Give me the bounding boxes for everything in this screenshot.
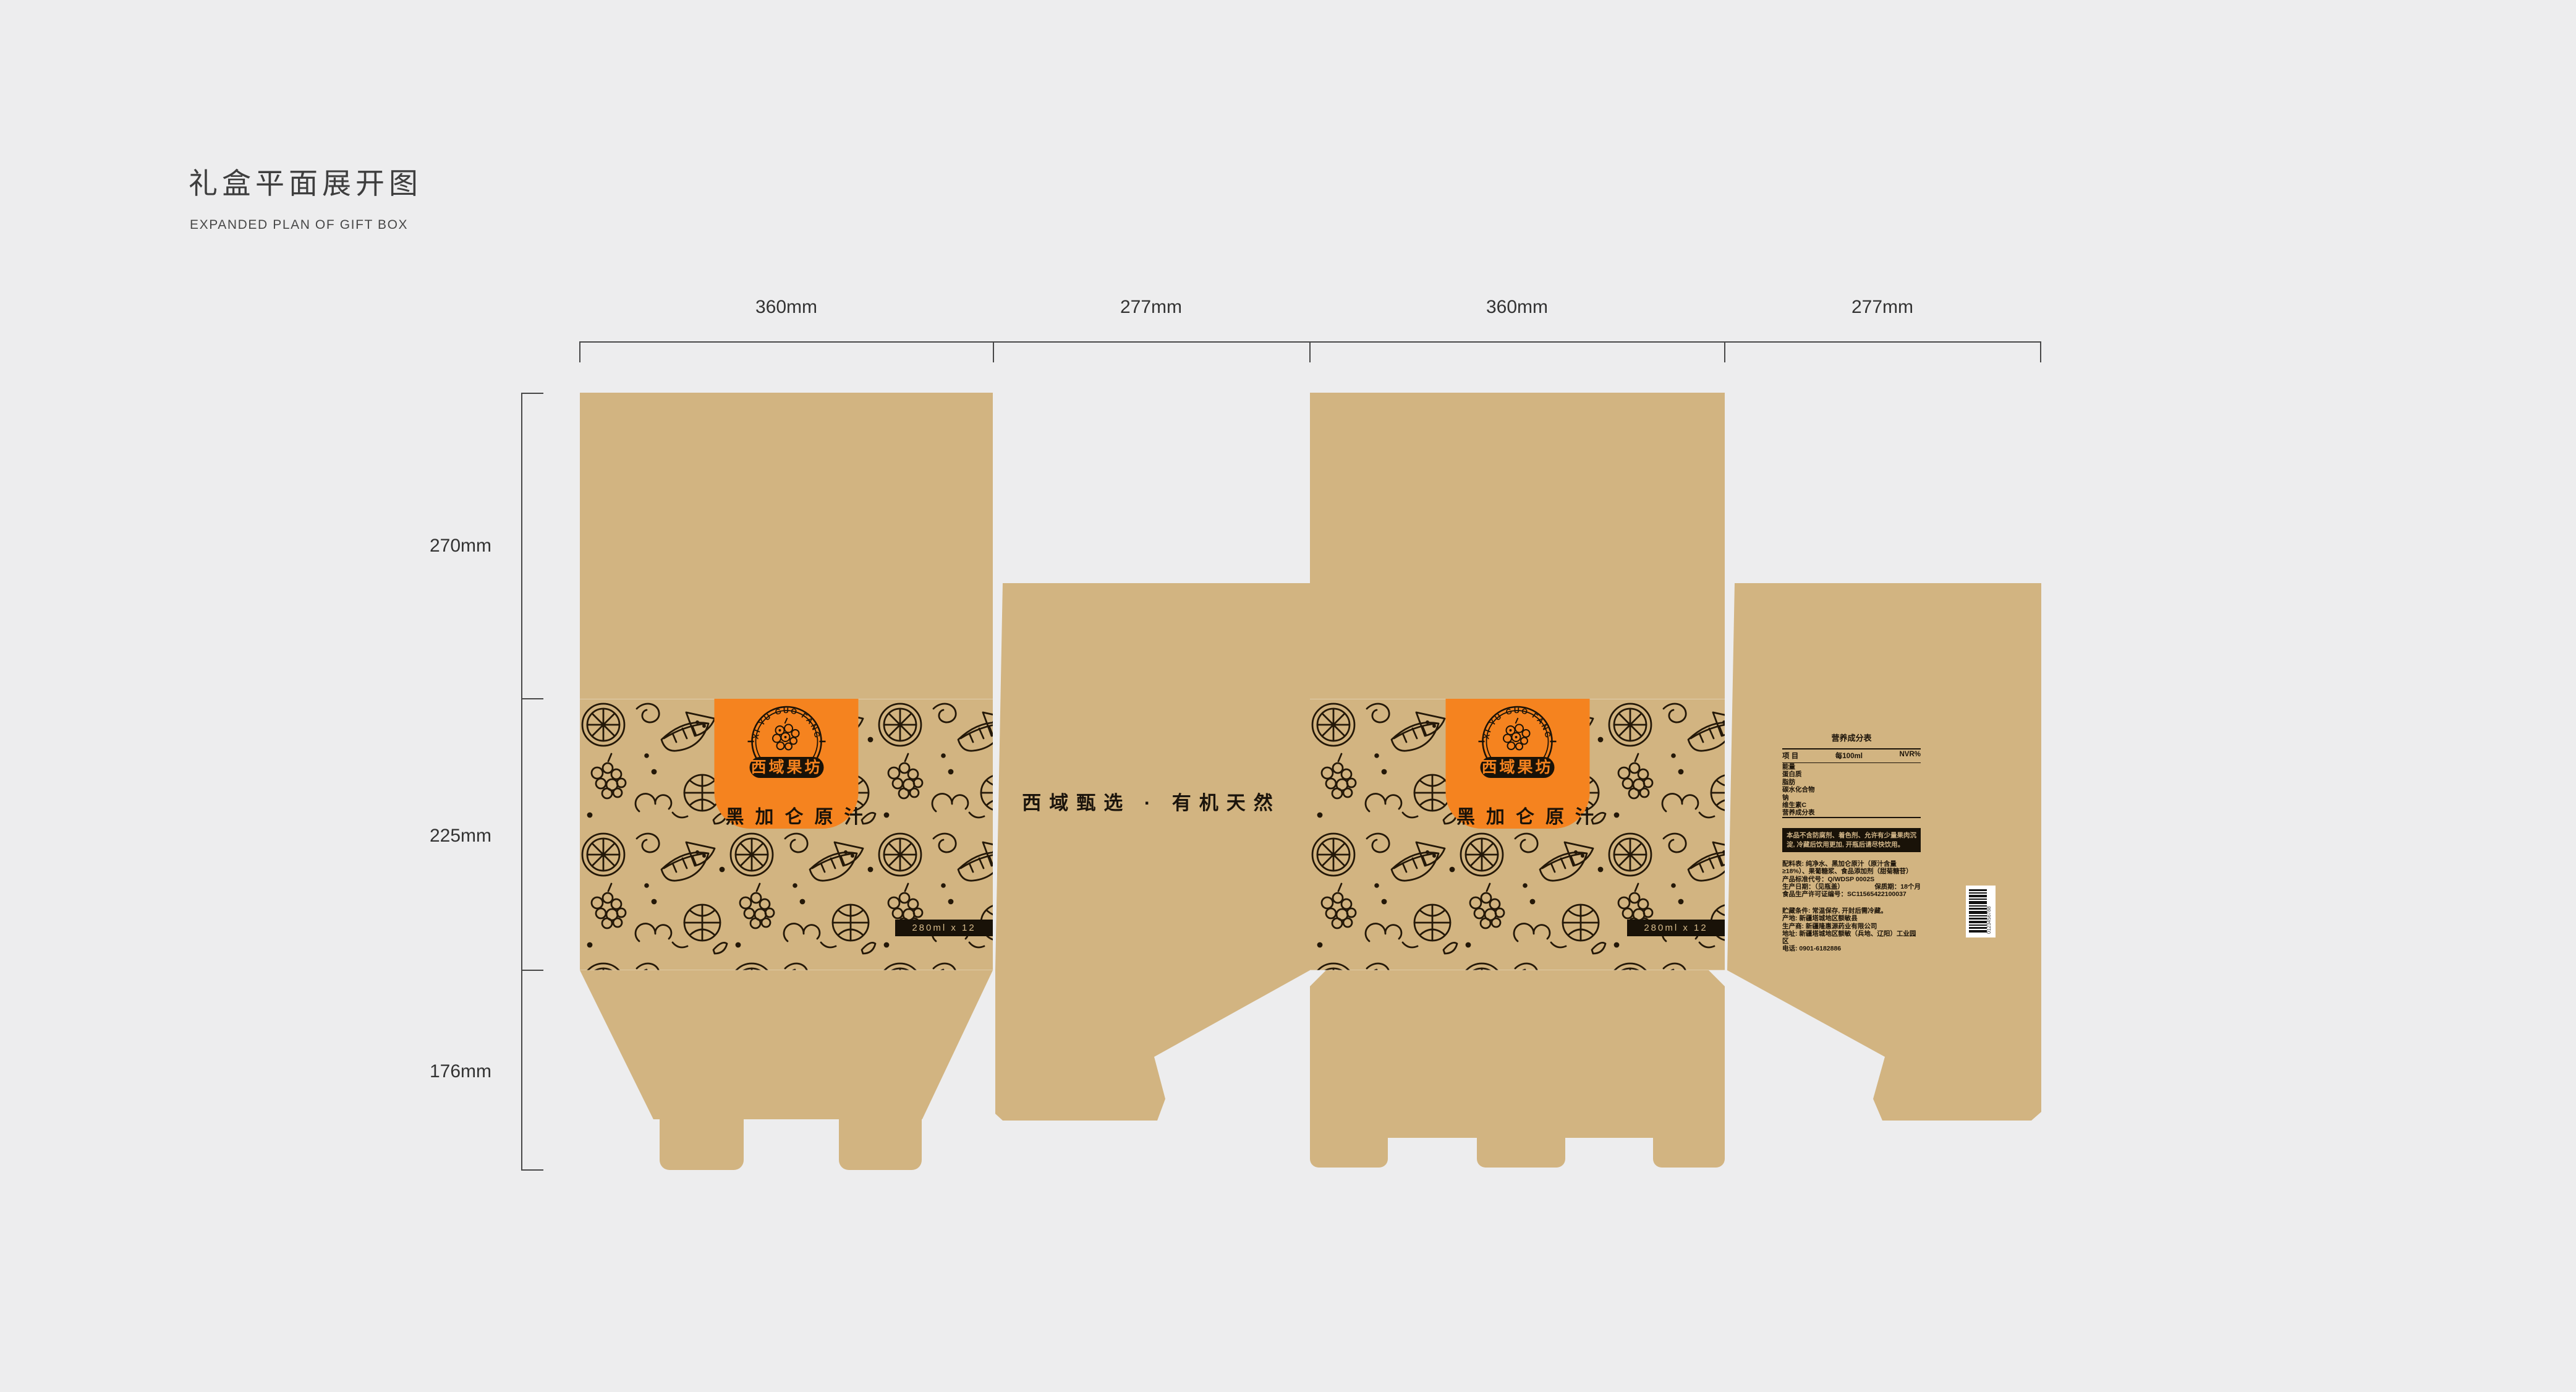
- nutrition-row: 蛋白质: [1782, 771, 1921, 778]
- dimension-tick: [1724, 341, 1725, 362]
- info-panel: 营养成分表 项 目 每100ml NVR% 能量 蛋白质 脂肪 碳水化合物 钠 …: [1782, 732, 1921, 952]
- nutrition-col-item: 项 目: [1782, 751, 1798, 761]
- panel1-foot-left: [660, 1113, 744, 1170]
- date-shelf-line: 生产日期：（见瓶盖） 保质期：18个月: [1782, 883, 1921, 890]
- ingredients-line: 配料表: 纯净水、黑加仑原汁（原汁含量≥18%）、果葡糖浆、食品添加剂（甜菊糖苷…: [1782, 860, 1921, 875]
- panel1-bottom-flap: [580, 970, 993, 1119]
- dimension-tick: [1309, 341, 1311, 362]
- dimension-line: [521, 393, 522, 1171]
- panel3-leg-middle: [1477, 1125, 1565, 1168]
- product-name: 黑加仑原汁: [715, 801, 859, 829]
- capacity-text: 280ml x 12: [912, 923, 976, 933]
- dimension-label-width-4: 277mm: [1851, 297, 1913, 318]
- nutrition-col-nrv: NVR%: [1899, 751, 1921, 761]
- panel1-foot-right: [839, 1113, 922, 1170]
- nutrition-table: 项 目 每100ml NVR% 能量 蛋白质 脂肪 碳水化合物 钠 维生素C 营…: [1782, 748, 1921, 818]
- origin-line: 产地: 新疆塔城地区额敏县: [1782, 915, 1921, 922]
- shelf-life: 保质期：18个月: [1874, 883, 1921, 890]
- expanded-gift-box-plan: 礼盒平面展开图 EXPANDED PLAN OF GIFT BOX 360mm …: [0, 0, 2576, 1392]
- brand-name-pill-text: 西域果坊: [1481, 758, 1553, 776]
- panel2-side: 西域甄选 · 有机天然: [993, 583, 1310, 970]
- preservative-notice: 本品不含防腐剂、着色剂、允许有少量果肉沉淀, 冷藏后饮用更加, 开瓶后请尽快饮用…: [1782, 828, 1921, 852]
- brand-badge: XI YU GUO FANG 西域果坊 黑加仑原汁: [1445, 699, 1589, 829]
- nutrition-row: 脂肪: [1782, 779, 1921, 786]
- product-name: 黑加仑原汁: [1445, 801, 1589, 829]
- brand-badge: XI YU GUO FANG 西域果坊 黑加仑原汁: [715, 699, 859, 829]
- panel3-leg-left: [1310, 1125, 1388, 1168]
- dimension-line: [580, 341, 2041, 343]
- panel3-bottom-flap: [1310, 970, 1725, 1138]
- standard-code-line: 产品标准代号：Q/WDSP 0002S: [1782, 876, 1921, 883]
- page-subtitle: EXPANDED PLAN OF GIFT BOX: [190, 218, 408, 233]
- dimension-label-width-3: 360mm: [1486, 297, 1548, 318]
- brand-logo: XI YU GUO FANG 西域果坊: [1447, 702, 1589, 800]
- nutrition-row: 维生素C: [1782, 801, 1921, 809]
- dimension-label-height-2: 225mm: [386, 826, 491, 847]
- page-title: 礼盒平面展开图: [189, 160, 422, 202]
- barcode-digits: 0123456788: [1986, 906, 1992, 934]
- panel1-top-flap: [580, 393, 993, 699]
- dimension-tick: [2040, 341, 2041, 362]
- panel3-artwork-band: XI YU GUO FANG 西域果坊 黑加仑原汁 280ml x 12: [1310, 699, 1725, 970]
- side-slogan: 西域甄选 · 有机天然: [993, 787, 1310, 815]
- barcode: 0123456788: [1966, 886, 1996, 937]
- logo-arc-text: XI YU GUO FANG: [751, 706, 822, 740]
- manufacturer-line: 生产商: 新疆隆惠源药业有限公司: [1782, 923, 1921, 930]
- panel4-bottom-flap: [1725, 970, 2041, 1121]
- nutrition-row: 钠: [1782, 794, 1921, 801]
- dimension-tick: [993, 341, 994, 362]
- brand-logo: XI YU GUO FANG 西域果坊: [715, 702, 857, 800]
- dimension-label-height-1: 270mm: [386, 536, 491, 557]
- dimension-label-width-2: 277mm: [1120, 297, 1182, 318]
- storage-line: 贮藏条件: 常温保存, 开封后需冷藏。: [1782, 907, 1921, 915]
- nutrition-row: 能量: [1782, 763, 1921, 771]
- capacity-bar: 280ml x 12: [1627, 920, 1725, 936]
- panel4-side: 营养成分表 项 目 每100ml NVR% 能量 蛋白质 脂肪 碳水化合物 钠 …: [1725, 583, 2041, 970]
- capacity-bar: 280ml x 12: [895, 920, 993, 936]
- dimension-tick: [521, 970, 543, 971]
- dimension-label-width-1: 360mm: [755, 297, 817, 318]
- brand-name-pill-text: 西域果坊: [750, 758, 822, 776]
- production-date: 生产日期：（见瓶盖）: [1782, 883, 1844, 890]
- dimension-tick: [521, 1169, 543, 1171]
- logo-arc-text: XI YU GUO FANG: [1482, 706, 1552, 740]
- phone-line: 电话: 0901-6182886: [1782, 945, 1921, 952]
- currant-bunch-icon: [773, 718, 799, 750]
- dimension-tick: [521, 393, 543, 394]
- currant-bunch-icon: [1503, 718, 1530, 750]
- panel1-artwork-band: XI YU GUO FANG 西域果坊 黑加仑原汁 280ml x 12: [580, 699, 993, 970]
- dimension-tick: [521, 698, 543, 699]
- nutrition-row: 营养成分表: [1782, 809, 1921, 816]
- nutrition-title: 营养成分表: [1782, 732, 1921, 743]
- nutrition-col-per: 每100ml: [1835, 751, 1863, 761]
- svg-text:XI YU GUO FANG: XI YU GUO FANG: [751, 706, 822, 740]
- license-line: 食品生产许可证编号：SC11565422100037: [1782, 890, 1921, 898]
- nutrition-row: 碳水化合物: [1782, 786, 1921, 793]
- panel3-leg-right: [1653, 1125, 1725, 1168]
- svg-text:XI YU GUO FANG: XI YU GUO FANG: [1482, 706, 1552, 740]
- address-line: 地址: 新疆塔城地区额敏（兵地、辽阳）工业园区: [1782, 930, 1921, 945]
- panel2-bottom-flap: [993, 970, 1310, 1121]
- capacity-text: 280ml x 12: [1644, 923, 1707, 933]
- dimension-tick: [579, 341, 580, 362]
- panel3-top-flap: [1310, 393, 1725, 699]
- dimension-label-height-3: 176mm: [386, 1061, 491, 1082]
